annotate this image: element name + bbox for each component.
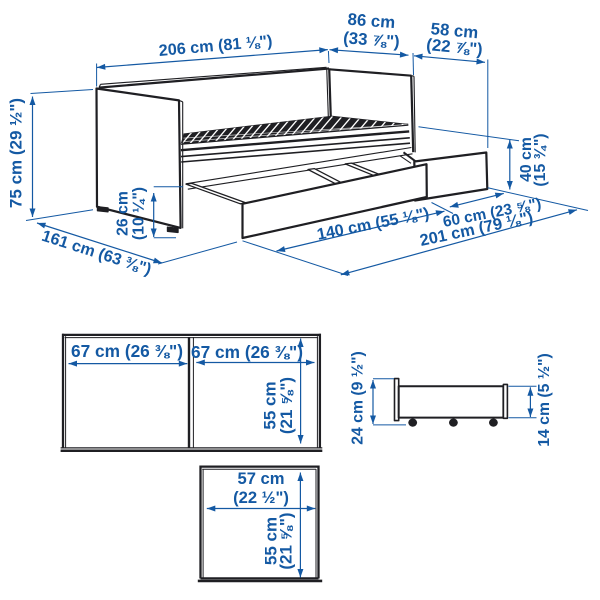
svg-text:24 cm (9 ½"): 24 cm (9 ½") bbox=[350, 351, 367, 445]
svg-text:67 cm (26 ⅜"): 67 cm (26 ⅜") bbox=[191, 342, 303, 362]
svg-text:26 cm: 26 cm bbox=[115, 191, 132, 236]
svg-text:(15 ¾"): (15 ¾") bbox=[532, 133, 549, 186]
svg-text:57 cm: 57 cm bbox=[237, 469, 284, 488]
svg-text:75 cm (29 ½"): 75 cm (29 ½") bbox=[7, 98, 26, 208]
svg-text:(22 ½"): (22 ½") bbox=[233, 488, 289, 507]
svg-text:67 cm (26 ⅜"): 67 cm (26 ⅜") bbox=[71, 341, 183, 361]
svg-text:(21 ⅝"): (21 ⅝") bbox=[277, 512, 296, 569]
svg-text:(10 ¼"): (10 ¼") bbox=[131, 187, 148, 240]
svg-text:14 cm (5 ½"): 14 cm (5 ½") bbox=[536, 353, 553, 447]
svg-text:(21 ⅝"): (21 ⅝") bbox=[277, 377, 296, 434]
